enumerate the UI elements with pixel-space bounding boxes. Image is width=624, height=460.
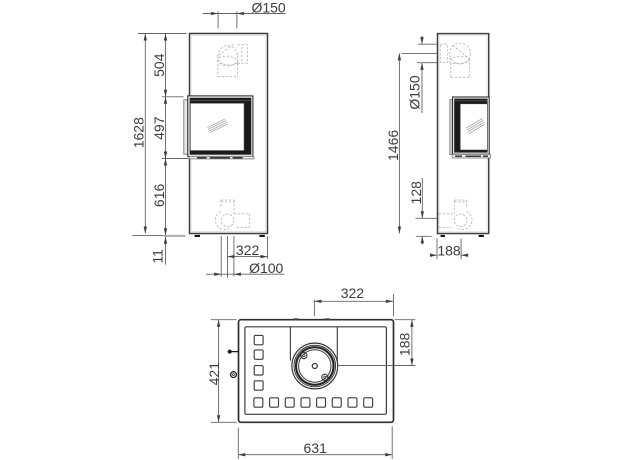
svg-text:188: 188	[397, 333, 413, 357]
svg-text:631: 631	[304, 440, 328, 456]
svg-text:1628: 1628	[131, 117, 147, 148]
svg-text:11: 11	[150, 249, 166, 264]
svg-text:616: 616	[151, 184, 167, 208]
svg-text:Ø150: Ø150	[251, 0, 285, 15]
svg-text:322: 322	[341, 285, 365, 301]
svg-text:Ø150: Ø150	[407, 75, 423, 109]
svg-text:128: 128	[408, 181, 424, 205]
svg-text:322: 322	[236, 242, 260, 258]
svg-text:1466: 1466	[385, 130, 401, 161]
svg-text:188: 188	[437, 242, 461, 258]
svg-text:497: 497	[151, 116, 167, 140]
svg-text:Ø100: Ø100	[249, 260, 283, 276]
svg-text:504: 504	[151, 53, 167, 77]
svg-text:421: 421	[206, 362, 222, 386]
